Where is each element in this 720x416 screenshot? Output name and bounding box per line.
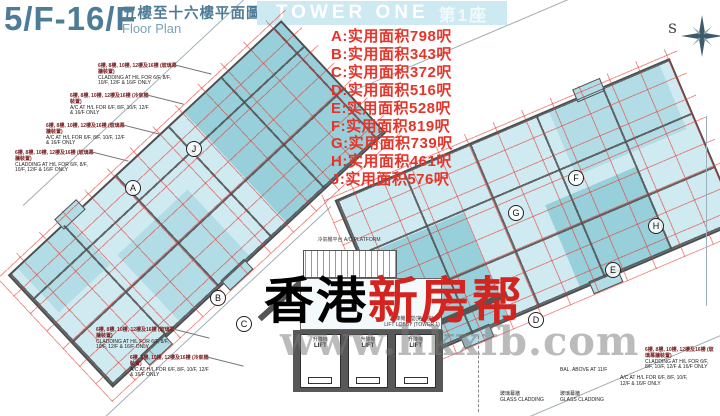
ac-platform-zh: 冷氣機平台	[318, 237, 343, 243]
balcony-above-annotation: BAL. ABOVE AT 11/F	[560, 368, 618, 374]
compass-rose-icon	[680, 14, 720, 58]
glass-cladding-label: 玻璃幕牆 GLASS CLADDING	[500, 392, 544, 404]
unit-area-a: A:实用面积798呎	[331, 28, 453, 46]
lift-door	[308, 377, 332, 384]
unit-area-b: B:实用面积343呎	[331, 46, 453, 64]
ac-annotation: A/C AT H/L FOR 6/F, 8/F, 10/F, 12/F & 16…	[620, 376, 692, 388]
unit-area-f: F:实用面积819呎	[331, 118, 453, 136]
unit-circle-e: E	[605, 262, 621, 278]
plan-subtitle: 五樓至十六樓平面圖 Floor Plan	[122, 7, 262, 36]
ac-annotation: 6樓, 8樓, 10樓, 12樓及16樓 (冷氣機裝置) A/C AT H/L …	[130, 356, 210, 379]
unit-area-d: D:实用面积516呎	[331, 82, 453, 100]
plan-subtitle-en: Floor Plan	[122, 22, 262, 36]
right-dimension-line	[706, 116, 707, 306]
floor-plan-page: 5/F-16/F 五樓至十六樓平面圖 Floor Plan TOWER ONE …	[0, 0, 720, 416]
unit-area-c: C:实用面积372呎	[331, 64, 453, 82]
lift-door	[404, 377, 428, 384]
watermark-url: www.hkxfb.com	[280, 322, 639, 362]
unit-area-h: H:实用面积461呎	[331, 153, 453, 171]
cladding-annotation: 6樓, 8樓, 10樓, 12樓及16樓 (玻璃幕牆裝置) CLADDING A…	[645, 348, 717, 371]
cladding-annotation: 6樓, 8樓, 10樓, 12樓及16樓 (玻璃幕牆裝置) CLADDING A…	[96, 328, 176, 351]
glass-cladding-label: 玻璃幕牆 GLASS CLADDING	[560, 392, 604, 404]
ac-platform-en: A/C PLATFORM	[344, 237, 381, 243]
unit-area-e: E:实用面积528呎	[331, 100, 453, 118]
unit-circle-j: J	[186, 141, 202, 157]
unit-circle-c: C	[236, 316, 252, 332]
unit-circle-g: G	[508, 205, 524, 221]
floor-range-title: 5/F-16/F	[4, 0, 137, 38]
ac-annotation: 6樓, 8樓, 10樓, 12樓及16樓 (冷氣機裝置) A/C AT H/L …	[70, 94, 150, 117]
cladding-annotation: 6樓, 8樓, 10樓, 12樓及16樓 (玻璃幕牆裝置) CLADDING A…	[15, 151, 95, 174]
unit-circle-f: F	[568, 170, 584, 186]
cladding-annotation: 6樓, 8樓, 10樓, 12樓及16樓 (玻璃幕牆裝置) CLADDING A…	[98, 64, 178, 87]
lift-door	[356, 377, 380, 384]
ac-platform-label: 冷氣機平台 A/C PLATFORM	[298, 238, 400, 244]
plan-subtitle-zh: 五樓至十六樓平面圖	[122, 7, 262, 22]
unit-area-list: A:实用面积798呎 B:实用面积343呎 C:实用面积372呎 D:实用面积5…	[331, 28, 453, 189]
compass-south-label: S	[668, 22, 677, 37]
tower-name-en: TOWER ONE	[276, 2, 429, 24]
unit-circle-h: H	[648, 218, 664, 234]
unit-circle-b: B	[210, 290, 226, 306]
cladding-annotation: 6樓, 8樓, 10樓, 12樓及16樓 (玻璃幕牆裝置) A/C AT H/L…	[46, 124, 126, 147]
tower-name-zh: 第1座	[439, 1, 488, 26]
unit-area-g: G:实用面积739呎	[331, 135, 453, 153]
unit-area-j: J:实用面积576呎	[331, 171, 453, 189]
unit-circle-a: A	[125, 180, 141, 196]
